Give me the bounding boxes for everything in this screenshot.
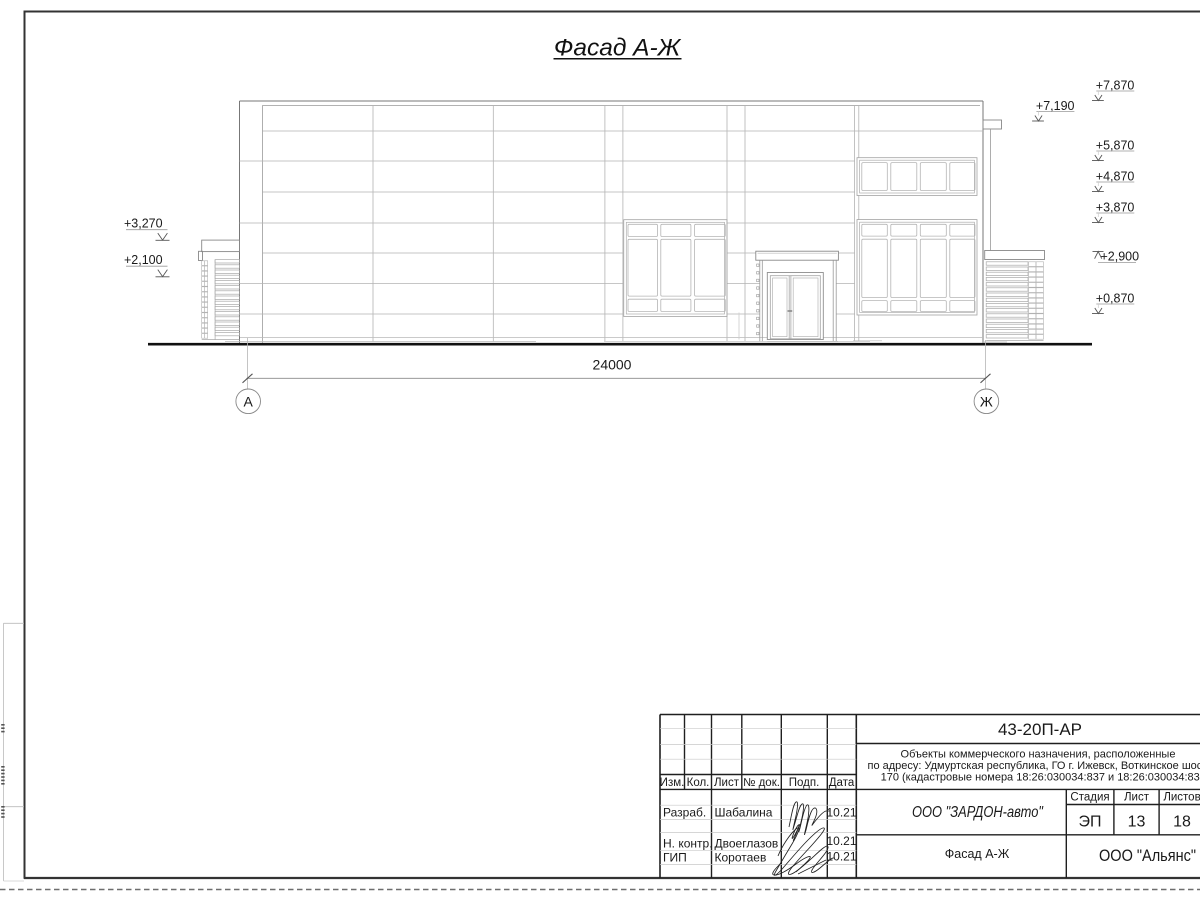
svg-text:+3,270: +3,270	[124, 217, 163, 231]
svg-text:ГИП: ГИП	[663, 851, 687, 865]
svg-text:+7,870: +7,870	[1096, 79, 1135, 93]
svg-text:13: 13	[1128, 814, 1146, 831]
svg-text:10.21: 10.21	[826, 806, 856, 820]
svg-text:Изм.: Изм.	[660, 777, 685, 789]
svg-text:Стадия: Стадия	[1070, 792, 1109, 804]
svg-text:43-20П-АР: 43-20П-АР	[998, 720, 1082, 739]
svg-text:Разраб.: Разраб.	[663, 806, 706, 820]
svg-text:ЭП: ЭП	[1079, 814, 1102, 831]
svg-text:Фасад А-Ж: Фасад А-Ж	[554, 35, 682, 62]
svg-text:А: А	[244, 393, 254, 409]
svg-text:ООО "Альянс": ООО "Альянс"	[1099, 846, 1196, 865]
svg-text:Фасад А-Ж: Фасад А-Ж	[945, 847, 1010, 861]
svg-text:Лист: Лист	[714, 777, 740, 789]
svg-text:по адресу: Удмуртская республи: по адресу: Удмуртская республика, ГО г. …	[868, 760, 1200, 772]
svg-text:Объекты коммерческого назначен: Объекты коммерческого назначения, распол…	[901, 749, 1176, 761]
svg-text:ООО "ЗАРДОН-авто": ООО "ЗАРДОН-авто"	[912, 804, 1044, 821]
svg-text:+7,190: +7,190	[1036, 99, 1075, 113]
svg-text:Коротаев: Коротаев	[715, 851, 767, 865]
svg-text:+2,900: +2,900	[1101, 250, 1140, 264]
svg-text:+3,870: +3,870	[1096, 201, 1135, 215]
svg-text:Н. контр.: Н. контр.	[663, 837, 713, 851]
svg-text:Дата: Дата	[829, 777, 855, 789]
svg-text:Шабалина: Шабалина	[715, 806, 773, 820]
svg-text:24000: 24000	[593, 357, 632, 373]
svg-text:+4,870: +4,870	[1096, 170, 1135, 184]
svg-text:№ док.: № док.	[743, 777, 780, 789]
svg-text:Подп.: Подп.	[789, 777, 820, 789]
svg-text:Ж: Ж	[980, 393, 993, 409]
svg-text:+0,870: +0,870	[1096, 292, 1135, 306]
svg-text:10.21: 10.21	[826, 834, 856, 848]
svg-text:170 (кадастровые номера 18:26:: 170 (кадастровые номера 18:26:030034:837…	[881, 771, 1200, 783]
svg-text:Лист: Лист	[1124, 792, 1150, 804]
svg-text:Листов: Листов	[1163, 792, 1200, 804]
svg-text:+2,100: +2,100	[124, 253, 163, 267]
svg-text:18: 18	[1173, 814, 1191, 831]
svg-text:+5,870: +5,870	[1096, 139, 1135, 153]
svg-text:Кол.: Кол.	[687, 777, 710, 789]
svg-text:Двоеглазов: Двоеглазов	[715, 837, 779, 851]
svg-text:10.21: 10.21	[826, 850, 856, 864]
